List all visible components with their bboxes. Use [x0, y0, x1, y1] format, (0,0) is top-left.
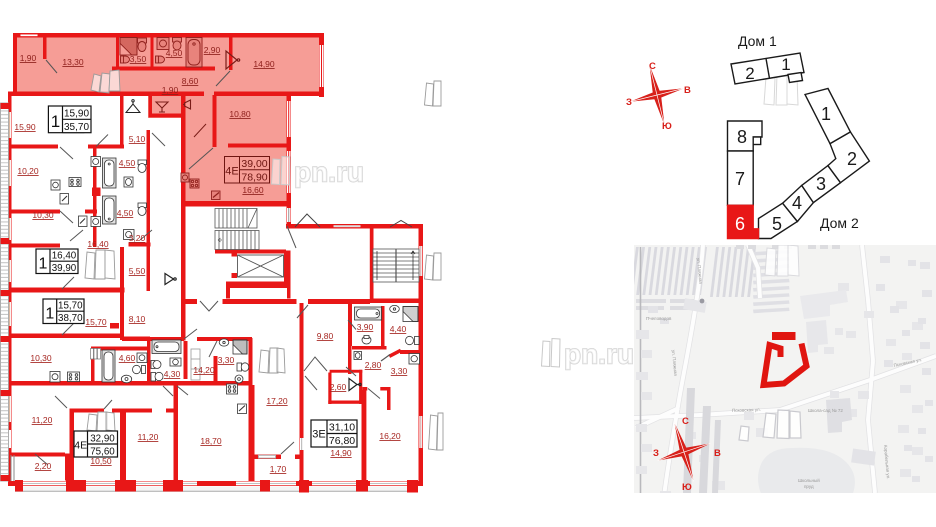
svg-text:Ю: Ю	[682, 482, 692, 493]
svg-text:7: 7	[735, 169, 745, 189]
svg-text:1: 1	[781, 55, 790, 74]
svg-text:75,60: 75,60	[90, 447, 115, 458]
svg-text:10,30: 10,30	[32, 210, 54, 220]
svg-text:В: В	[684, 85, 691, 96]
svg-text:1: 1	[51, 112, 60, 131]
svg-text:4,50: 4,50	[117, 208, 134, 218]
svg-text:11,20: 11,20	[32, 415, 53, 425]
svg-text:Дом 2: Дом 2	[820, 215, 859, 231]
svg-text:8: 8	[737, 127, 747, 147]
svg-text:3Е: 3Е	[312, 429, 325, 441]
svg-text:15,70: 15,70	[58, 301, 83, 312]
svg-text:1,70: 1,70	[270, 464, 287, 474]
svg-text:3,20: 3,20	[129, 233, 146, 243]
svg-text:14,90: 14,90	[330, 448, 352, 458]
svg-text:Ю: Ю	[662, 121, 672, 132]
svg-text:8,60: 8,60	[182, 76, 199, 86]
svg-text:2,90: 2,90	[204, 45, 221, 55]
svg-text:17,20: 17,20	[266, 396, 288, 406]
svg-text:4,30: 4,30	[164, 369, 181, 379]
svg-text:2: 2	[847, 149, 857, 169]
svg-text:38,70: 38,70	[58, 313, 83, 324]
svg-text:39,00: 39,00	[241, 158, 267, 170]
svg-text:2,20: 2,20	[35, 461, 52, 471]
svg-text:2: 2	[745, 64, 754, 83]
svg-text:4Е: 4Е	[225, 166, 238, 178]
svg-text:4: 4	[792, 193, 802, 213]
svg-text:14,90: 14,90	[253, 59, 275, 69]
svg-text:16,60: 16,60	[242, 185, 264, 195]
svg-text:14,20: 14,20	[193, 365, 215, 375]
svg-text:С: С	[649, 61, 656, 72]
svg-text:1,90: 1,90	[20, 53, 37, 63]
svg-text:3,90: 3,90	[357, 322, 374, 332]
svg-text:4,50: 4,50	[166, 48, 183, 58]
svg-text:4Е: 4Е	[74, 440, 87, 452]
svg-text:5: 5	[772, 214, 782, 234]
svg-text:С: С	[682, 416, 689, 427]
svg-text:Школа-сад № 72: Школа-сад № 72	[808, 408, 843, 413]
svg-text:11,20: 11,20	[138, 432, 159, 442]
svg-text:35,70: 35,70	[64, 122, 89, 133]
svg-text:1: 1	[821, 104, 831, 124]
svg-text:39,90: 39,90	[52, 263, 77, 274]
svg-text:10,80: 10,80	[229, 109, 251, 119]
svg-text:10,20: 10,20	[17, 166, 39, 176]
svg-text:3,50: 3,50	[130, 54, 147, 64]
svg-text:16,40: 16,40	[87, 239, 109, 249]
svg-text:18,70: 18,70	[200, 436, 222, 446]
svg-text:8,10: 8,10	[129, 314, 146, 324]
svg-text:31,10: 31,10	[329, 422, 355, 434]
svg-text:1: 1	[39, 256, 48, 273]
svg-text:3,30: 3,30	[391, 366, 408, 376]
svg-text:13,30: 13,30	[62, 57, 84, 67]
svg-text:4,60: 4,60	[119, 353, 136, 363]
svg-text:6: 6	[735, 214, 745, 234]
svg-text:Школьный: Школьный	[798, 477, 820, 483]
svg-text:78,90: 78,90	[241, 172, 267, 184]
svg-text:5,10: 5,10	[129, 134, 146, 144]
svg-text:pn.ru: pn.ru	[564, 339, 634, 370]
svg-text:4,50: 4,50	[119, 158, 136, 168]
svg-text:пруд: пруд	[804, 484, 814, 489]
svg-text:3: 3	[816, 174, 826, 194]
svg-text:15,70: 15,70	[85, 317, 107, 327]
svg-text:1: 1	[45, 306, 54, 323]
svg-text:15,90: 15,90	[64, 109, 89, 120]
svg-text:Пчеловодов: Пчеловодов	[646, 316, 672, 321]
svg-text:В: В	[714, 448, 721, 459]
svg-text:З: З	[653, 448, 659, 459]
svg-text:2,60: 2,60	[330, 382, 347, 392]
svg-text:1,90: 1,90	[162, 85, 179, 95]
svg-text:16,40: 16,40	[52, 251, 77, 262]
svg-text:3,30: 3,30	[218, 355, 235, 365]
svg-text:32,90: 32,90	[90, 434, 115, 445]
svg-text:pn.ru: pn.ru	[294, 157, 364, 188]
svg-text:15,90: 15,90	[14, 122, 36, 132]
svg-text:Псковская ул.: Псковская ул.	[732, 407, 761, 413]
svg-text:16,20: 16,20	[379, 431, 401, 441]
svg-text:2,80: 2,80	[365, 360, 382, 370]
svg-text:Дом 1: Дом 1	[738, 33, 777, 49]
svg-text:76,80: 76,80	[329, 435, 355, 447]
svg-text:З: З	[626, 97, 632, 108]
svg-text:9,80: 9,80	[317, 331, 334, 341]
svg-text:4,40: 4,40	[390, 324, 407, 334]
svg-text:5,50: 5,50	[129, 266, 146, 276]
svg-text:10,30: 10,30	[30, 353, 52, 363]
